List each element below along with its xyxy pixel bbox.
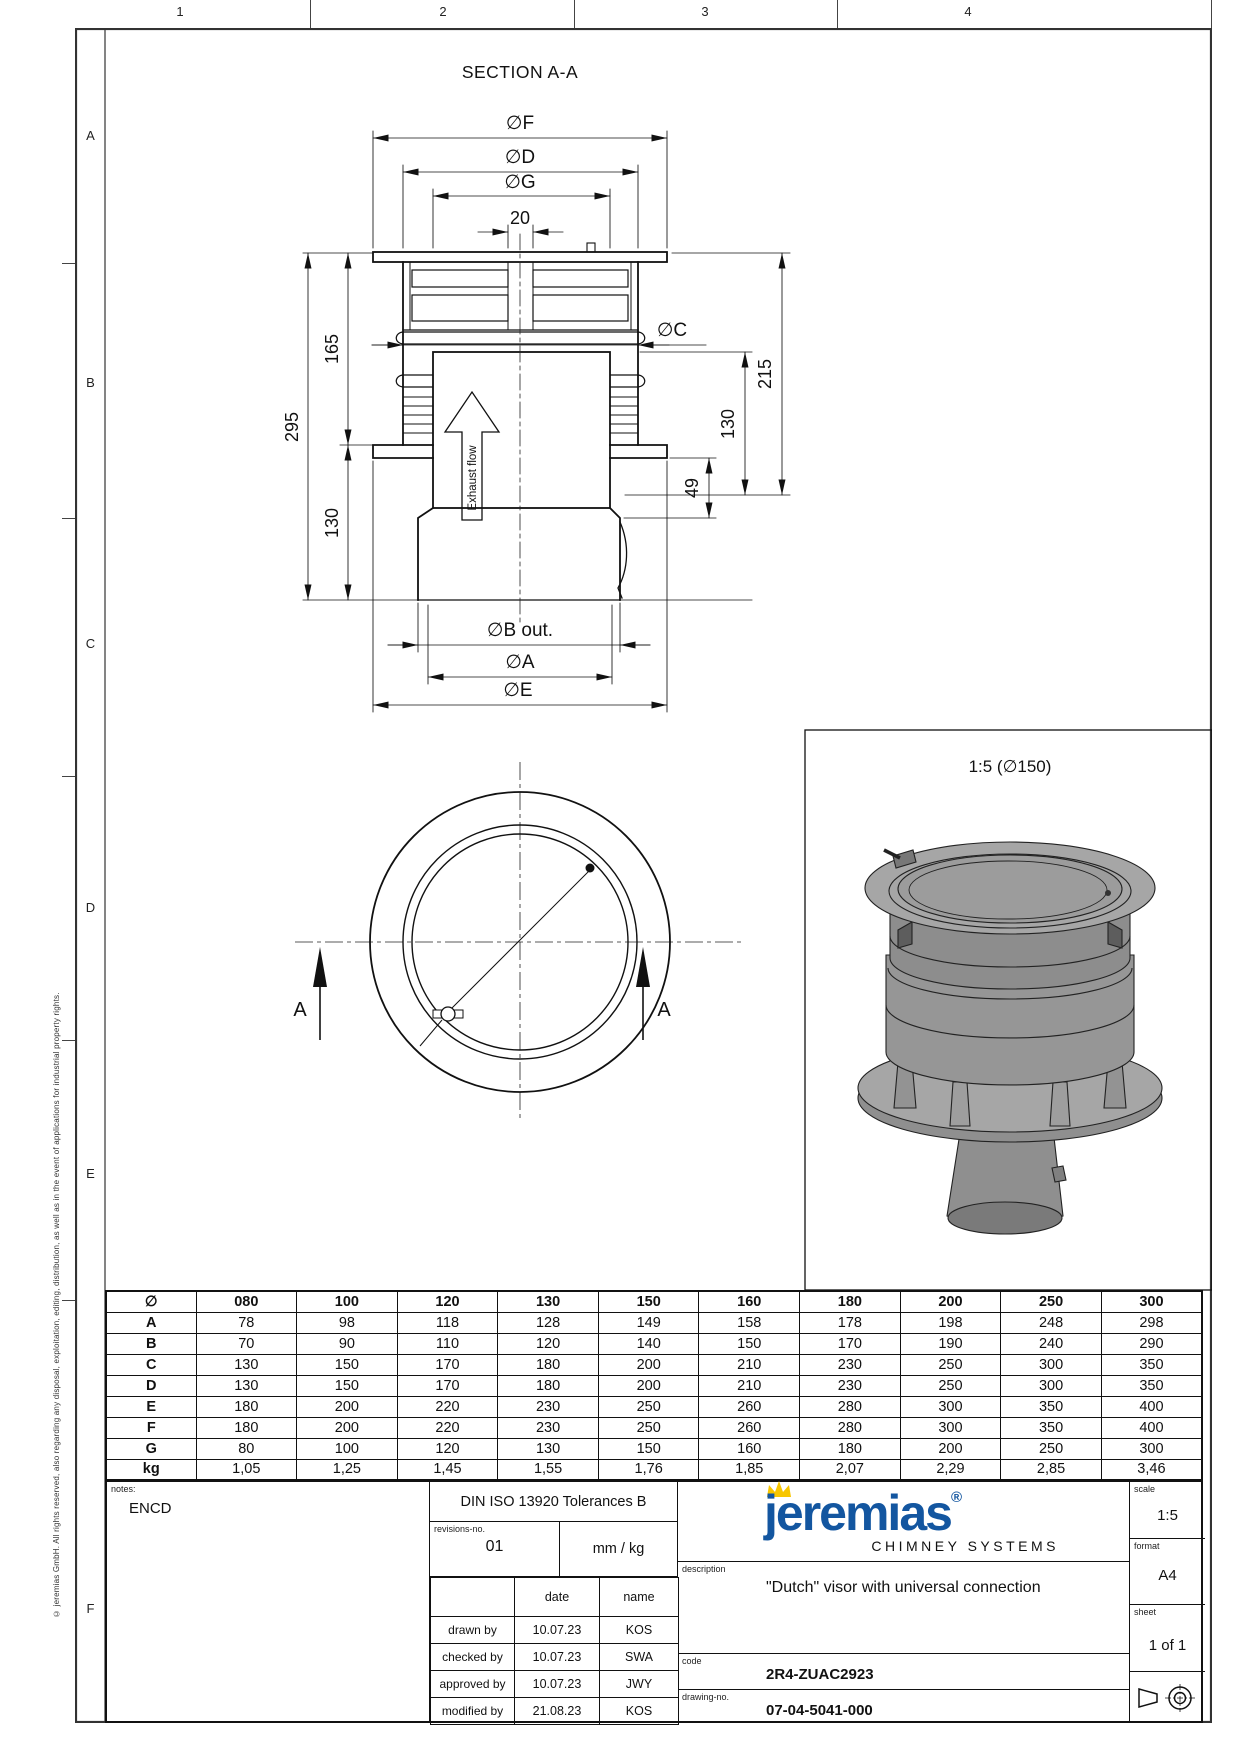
- size-value-cell: 200: [297, 1417, 398, 1438]
- size-value-cell: 298: [1101, 1312, 1202, 1333]
- drawing-sheet: 1 2 3 4 A B C D E F © jeremias GmbH. All…: [0, 0, 1241, 1754]
- grid-col-label: 2: [428, 4, 458, 19]
- size-value-cell: 230: [800, 1375, 901, 1396]
- drawing-no-box: drawing-no. 07-04-5041-000: [678, 1690, 1130, 1723]
- size-table-row: C130150170180200210230250300350: [106, 1354, 1202, 1375]
- grid-col-label: 3: [690, 4, 720, 19]
- size-value-cell: 240: [1001, 1333, 1102, 1354]
- size-value-cell: 198: [900, 1312, 1001, 1333]
- size-value-cell: 1,45: [397, 1459, 498, 1480]
- grid-col-label: 1: [165, 4, 195, 19]
- size-value-cell: 200: [598, 1375, 699, 1396]
- size-value-cell: 248: [1001, 1312, 1102, 1333]
- scale-label: scale: [1134, 1484, 1155, 1494]
- dim-label-215: 215: [755, 359, 775, 389]
- size-value-cell: 100: [297, 1438, 398, 1459]
- size-row-label: C: [106, 1354, 196, 1375]
- dim-label-dia-a: ∅A: [505, 652, 535, 673]
- detail-panel: 1:5 (∅150): [805, 730, 1212, 1290]
- size-value-cell: 250: [1001, 1438, 1102, 1459]
- size-row-label: F: [106, 1417, 196, 1438]
- size-value-cell: 178: [800, 1312, 901, 1333]
- notes-box: notes: ENCD: [107, 1482, 430, 1723]
- grid-divider: [62, 518, 75, 519]
- size-col-header: 100: [297, 1291, 398, 1312]
- format-label: format: [1134, 1541, 1160, 1551]
- grid-divider: [62, 263, 75, 264]
- copyright-note: © jeremias GmbH. All rights reserved, al…: [52, 818, 66, 1618]
- title-block: notes: ENCD DIN ISO 13920 Tolerances B r…: [105, 1480, 1203, 1723]
- size-value-cell: 200: [900, 1438, 1001, 1459]
- revisions-label: revisions-no.: [434, 1524, 485, 1534]
- size-table-row: B7090110120140150170190240290: [106, 1333, 1202, 1354]
- revisions-box: revisions-no. 01: [430, 1522, 560, 1577]
- size-col-header: 250: [1001, 1291, 1102, 1312]
- code-box: code 2R4-ZUAC2923: [678, 1654, 1130, 1690]
- size-col-header: 300: [1101, 1291, 1202, 1312]
- size-table-header-row: ∅080100120130150160180200250300: [106, 1291, 1202, 1312]
- size-value-cell: 180: [498, 1354, 599, 1375]
- sheet-value: 1 of 1: [1130, 1637, 1205, 1654]
- size-value-cell: 180: [800, 1438, 901, 1459]
- size-value-cell: 170: [800, 1333, 901, 1354]
- size-value-cell: 2,85: [1001, 1459, 1102, 1480]
- cut-label-a-right: A: [657, 999, 671, 1021]
- size-value-cell: 170: [397, 1354, 498, 1375]
- size-col-header: 120: [397, 1291, 498, 1312]
- signoff-row: modified by21.08.23KOS: [431, 1698, 679, 1725]
- scale-value: 1:5: [1130, 1507, 1205, 1524]
- size-table-row: E180200220230250260280300350400: [106, 1396, 1202, 1417]
- scale-box: scale 1:5: [1130, 1482, 1205, 1539]
- tolerance-box: DIN ISO 13920 Tolerances B: [430, 1482, 678, 1522]
- signoff-row: approved by10.07.23JWY: [431, 1671, 679, 1698]
- notes-label: notes:: [111, 1484, 136, 1494]
- size-value-cell: 260: [699, 1417, 800, 1438]
- size-table: ∅080100120130150160180200250300 A7898118…: [105, 1290, 1203, 1481]
- size-row-label: B: [106, 1333, 196, 1354]
- notes-value: ENCD: [129, 1500, 172, 1517]
- size-value-cell: 350: [1101, 1375, 1202, 1396]
- dim-label-dia-e: ∅E: [503, 680, 532, 701]
- size-value-cell: 220: [397, 1417, 498, 1438]
- size-value-cell: 160: [699, 1438, 800, 1459]
- dim-label-dia-g: ∅G: [504, 172, 535, 193]
- size-value-cell: 120: [397, 1438, 498, 1459]
- format-value: A4: [1130, 1567, 1205, 1584]
- brand-box: jeremias® CHIMNEY SYSTEMS: [678, 1482, 1130, 1562]
- description-value: "Dutch" visor with universal connection: [766, 1576, 1046, 1601]
- size-col-header: 080: [196, 1291, 297, 1312]
- exhaust-flow-label: Exhaust flow: [467, 445, 479, 511]
- size-row-label: G: [106, 1438, 196, 1459]
- dim-label-20: 20: [510, 208, 530, 228]
- units-text: mm / kg: [593, 1541, 645, 1557]
- visor-3d-render: [858, 842, 1162, 1234]
- size-row-label: E: [106, 1396, 196, 1417]
- size-value-cell: 300: [1001, 1375, 1102, 1396]
- size-value-cell: 180: [196, 1396, 297, 1417]
- size-row-label: D: [106, 1375, 196, 1396]
- format-box: format A4: [1130, 1539, 1205, 1605]
- size-value-cell: 170: [397, 1375, 498, 1396]
- signoff-date-cell: 10.07.23: [515, 1671, 600, 1698]
- dim-label-165: 165: [322, 334, 342, 364]
- signoff-date-cell: 21.08.23: [515, 1698, 600, 1725]
- signoff-date-cell: 10.07.23: [515, 1644, 600, 1671]
- size-value-cell: 2,07: [800, 1459, 901, 1480]
- dim-label-130-right: 130: [718, 409, 738, 439]
- size-value-cell: 130: [196, 1375, 297, 1396]
- grid-divider: [62, 776, 75, 777]
- dim-label-dia-f: ∅F: [506, 113, 534, 134]
- size-value-cell: 1,85: [699, 1459, 800, 1480]
- grid-col-label: 4: [953, 4, 983, 19]
- size-value-cell: 250: [900, 1354, 1001, 1375]
- size-value-cell: 230: [498, 1396, 599, 1417]
- size-value-cell: 350: [1101, 1354, 1202, 1375]
- signoff-row: checked by10.07.23SWA: [431, 1644, 679, 1671]
- revisions-value: 01: [430, 1538, 559, 1556]
- drawing-no-label: drawing-no.: [682, 1692, 729, 1702]
- dim-label-295: 295: [282, 412, 302, 442]
- dim-label-dia-d: ∅D: [505, 147, 535, 168]
- size-value-cell: 118: [397, 1312, 498, 1333]
- size-value-cell: 150: [699, 1333, 800, 1354]
- size-value-cell: 400: [1101, 1417, 1202, 1438]
- dim-label-130-left: 130: [322, 508, 342, 538]
- drawing-no-value: 07-04-5041-000: [766, 1702, 873, 1719]
- signoff-date-cell: 10.07.23: [515, 1617, 600, 1644]
- size-value-cell: 140: [598, 1333, 699, 1354]
- code-value: 2R4-ZUAC2923: [766, 1666, 874, 1683]
- size-value-cell: 280: [800, 1417, 901, 1438]
- code-label: code: [682, 1656, 702, 1666]
- size-table-row: G80100120130150160180200250300: [106, 1438, 1202, 1459]
- size-value-cell: 130: [196, 1354, 297, 1375]
- size-value-cell: 150: [297, 1354, 398, 1375]
- detail-caption: 1:5 (∅150): [969, 757, 1052, 776]
- signoff-role-cell: modified by: [431, 1698, 515, 1725]
- size-value-cell: 70: [196, 1333, 297, 1354]
- size-value-cell: 230: [498, 1417, 599, 1438]
- brand-wordmark: jeremias®: [764, 1484, 962, 1542]
- grid-divider: [837, 0, 838, 28]
- description-label: description: [682, 1564, 726, 1574]
- description-box: description "Dutch" visor with universal…: [678, 1562, 1130, 1654]
- size-col-header: 130: [498, 1291, 599, 1312]
- size-value-cell: 250: [598, 1396, 699, 1417]
- size-value-cell: 2,29: [900, 1459, 1001, 1480]
- signoff-name-cell: KOS: [600, 1617, 679, 1644]
- cut-label-a-left: A: [293, 999, 307, 1021]
- sheet-label: sheet: [1134, 1607, 1156, 1617]
- size-value-cell: 350: [1001, 1396, 1102, 1417]
- first-angle-projection-icon: [1137, 1683, 1199, 1713]
- size-value-cell: 80: [196, 1438, 297, 1459]
- size-table-row: D130150170180200210230250300350: [106, 1375, 1202, 1396]
- size-col-header: 180: [800, 1291, 901, 1312]
- brand-tagline: CHIMNEY SYSTEMS: [871, 1538, 1059, 1554]
- size-value-cell: 1,05: [196, 1459, 297, 1480]
- signoff-box: date name drawn by10.07.23KOSchecked by1…: [430, 1577, 678, 1725]
- sheet-box: sheet 1 of 1: [1130, 1605, 1205, 1672]
- size-value-cell: 149: [598, 1312, 699, 1333]
- size-table-row: kg1,051,251,451,551,761,852,072,292,853,…: [106, 1459, 1202, 1480]
- size-table-row: F180200220230250260280300350400: [106, 1417, 1202, 1438]
- signoff-role-cell: approved by: [431, 1671, 515, 1698]
- size-value-cell: 130: [498, 1438, 599, 1459]
- brand-name: jeremias: [764, 1485, 951, 1541]
- size-value-cell: 200: [598, 1354, 699, 1375]
- size-value-cell: 128: [498, 1312, 599, 1333]
- signoff-table: date name drawn by10.07.23KOSchecked by1…: [430, 1577, 679, 1725]
- size-value-cell: 78: [196, 1312, 297, 1333]
- dim-label-49: 49: [682, 478, 702, 498]
- signoff-row: drawn by10.07.23KOS: [431, 1617, 679, 1644]
- size-value-cell: 250: [598, 1417, 699, 1438]
- size-value-cell: 90: [297, 1333, 398, 1354]
- dim-label-dia-c: ∅C: [657, 320, 687, 341]
- size-value-cell: 250: [900, 1375, 1001, 1396]
- size-value-cell: 180: [498, 1375, 599, 1396]
- section-title: SECTION A-A: [462, 62, 578, 82]
- size-value-cell: 200: [297, 1396, 398, 1417]
- signoff-name-cell: KOS: [600, 1698, 679, 1725]
- size-value-cell: 210: [699, 1375, 800, 1396]
- size-value-cell: 300: [900, 1396, 1001, 1417]
- size-value-cell: 180: [196, 1417, 297, 1438]
- section-view: SECTION A-A: [282, 62, 790, 712]
- signoff-role-cell: checked by: [431, 1644, 515, 1671]
- size-value-cell: 300: [1101, 1438, 1202, 1459]
- size-col-header: 200: [900, 1291, 1001, 1312]
- size-value-cell: 110: [397, 1333, 498, 1354]
- size-value-cell: 150: [598, 1438, 699, 1459]
- date-header: date: [515, 1578, 600, 1617]
- tolerance-text: DIN ISO 13920 Tolerances B: [461, 1494, 647, 1510]
- grid-divider: [310, 0, 311, 28]
- size-table-wrap: ∅080100120130150160180200250300 A7898118…: [105, 1290, 1203, 1480]
- size-col-header: 150: [598, 1291, 699, 1312]
- size-value-cell: 220: [397, 1396, 498, 1417]
- grid-divider: [1211, 0, 1212, 28]
- size-value-cell: 158: [699, 1312, 800, 1333]
- size-value-cell: 400: [1101, 1396, 1202, 1417]
- size-table-row: A7898118128149158178198248298: [106, 1312, 1202, 1333]
- size-value-cell: 230: [800, 1354, 901, 1375]
- signoff-name-cell: JWY: [600, 1671, 679, 1698]
- size-row-label: kg: [106, 1459, 196, 1480]
- damper-pivot-dot: [586, 864, 595, 873]
- size-col-header: 160: [699, 1291, 800, 1312]
- size-value-cell: 150: [297, 1375, 398, 1396]
- size-value-cell: 300: [1001, 1354, 1102, 1375]
- size-value-cell: 1,76: [598, 1459, 699, 1480]
- size-value-cell: 1,25: [297, 1459, 398, 1480]
- units-box: mm / kg: [560, 1522, 678, 1577]
- size-row-label: A: [106, 1312, 196, 1333]
- signoff-role-cell: drawn by: [431, 1617, 515, 1644]
- projection-box: [1130, 1672, 1205, 1723]
- top-view: A A: [293, 762, 745, 1122]
- dim-label-dia-b-out: ∅B out.: [487, 620, 553, 641]
- size-value-cell: 210: [699, 1354, 800, 1375]
- size-value-cell: 290: [1101, 1333, 1202, 1354]
- name-header: name: [600, 1578, 679, 1617]
- signoff-corner-cell: [431, 1578, 515, 1617]
- size-value-cell: 120: [498, 1333, 599, 1354]
- size-value-cell: 190: [900, 1333, 1001, 1354]
- size-value-cell: 280: [800, 1396, 901, 1417]
- registered-mark: ®: [951, 1489, 962, 1506]
- size-value-cell: 1,55: [498, 1459, 599, 1480]
- size-value-cell: 3,46: [1101, 1459, 1202, 1480]
- size-value-cell: 300: [900, 1417, 1001, 1438]
- size-value-cell: 350: [1001, 1417, 1102, 1438]
- diameter-header: ∅: [106, 1291, 196, 1312]
- size-value-cell: 98: [297, 1312, 398, 1333]
- size-value-cell: 260: [699, 1396, 800, 1417]
- signoff-name-cell: SWA: [600, 1644, 679, 1671]
- grid-divider: [574, 0, 575, 28]
